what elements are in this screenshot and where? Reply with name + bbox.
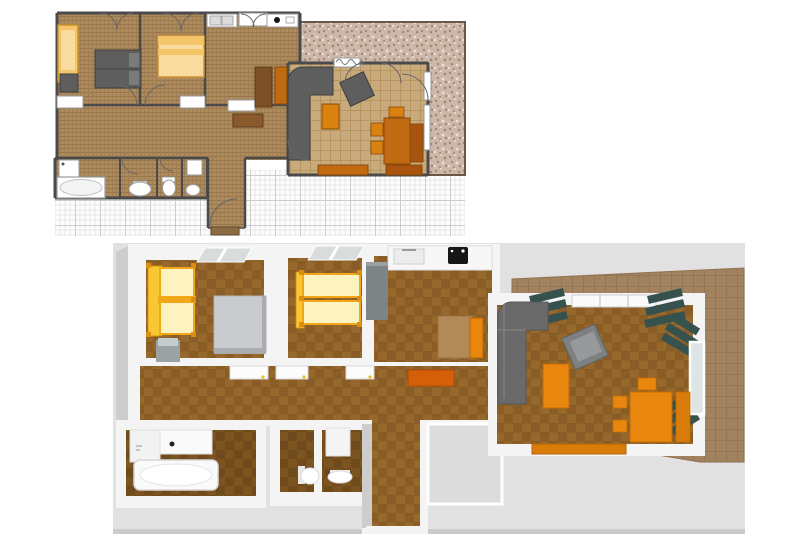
living-brown-cabinet: [255, 67, 272, 107]
wc2-sink: [328, 471, 352, 483]
floor-entry: [372, 420, 420, 526]
toilet-3d-bowl: [301, 468, 319, 484]
bath-counter: [160, 430, 212, 454]
dining-chair-2: [371, 141, 383, 154]
dining-chair-3d-1: [613, 396, 627, 408]
bed2-mattress-upper: [303, 274, 360, 297]
kitchen-cabinet-orange: [470, 318, 483, 358]
shower-tray: [59, 160, 79, 177]
kitchen-table: [438, 316, 472, 358]
bath-sink: [129, 182, 151, 196]
coffee-table-3d: [543, 364, 569, 408]
entry-doormat: [211, 227, 239, 235]
bed2-mattress-lower: [303, 301, 360, 324]
kitchen-stove-burner: [274, 17, 280, 23]
bed2-post-2: [357, 270, 362, 275]
bunkbed-midbar: [158, 296, 196, 303]
living-right-window: [424, 105, 430, 150]
bedroom2-bed-band: [158, 49, 204, 55]
hall-dresser: [233, 114, 263, 127]
double-bed-pillow-1: [129, 53, 139, 67]
bunkbed-post-4: [191, 332, 196, 337]
dining-table-3d: [630, 392, 672, 442]
bunkbed-post-2: [191, 263, 196, 268]
washing-machine: [187, 160, 202, 175]
kitchen-counter-stove: [267, 14, 298, 27]
kitchen-door-opening: [228, 100, 255, 111]
nightstand-top: [158, 338, 178, 346]
bunkbed-post-1: [146, 263, 151, 268]
dining-table-extension: [410, 124, 423, 162]
bunkbed-post-3: [146, 332, 151, 337]
hall-door-handle-2: [302, 375, 305, 378]
hall-console: [408, 370, 454, 386]
bedroom2-window: [180, 96, 205, 108]
kitchen-cooktop: [448, 247, 468, 264]
bath-counter-drain: [170, 442, 175, 447]
kitchen-sink: [394, 249, 424, 264]
cooktop-knob-1: [451, 250, 454, 253]
left-wall-face: [116, 246, 128, 430]
plan-3d-view: [113, 243, 745, 534]
sideboard-1: [318, 165, 368, 175]
bathtub-3d-basin: [140, 464, 212, 486]
dining-chair-3d-3: [638, 378, 656, 390]
entry-left-wall-face: [362, 424, 372, 528]
living-sideboard-3d: [532, 444, 626, 454]
bed2-post-1: [299, 270, 304, 275]
kitchen-sink-basin-1: [210, 16, 221, 25]
coffee-table: [322, 104, 339, 129]
dining-chair-3d-2: [613, 420, 627, 432]
toilet-bowl: [163, 180, 176, 196]
gray-bed: [214, 296, 266, 352]
double-bed-pillow-2: [129, 71, 139, 85]
gray-bed-side: [262, 296, 266, 352]
wc-divider-wall: [314, 424, 322, 502]
plan-2d-view: [55, 13, 465, 236]
kitchen-sink-basin-2: [222, 16, 233, 25]
hall-door-handle-1: [261, 375, 264, 378]
shower-area: [130, 430, 160, 462]
living-top-window: [572, 295, 656, 307]
bedroom1-window: [57, 96, 83, 108]
floorplan-svg: [0, 0, 800, 550]
cooktop-knob-2: [461, 249, 464, 252]
hall-door-handle-3: [368, 375, 371, 378]
bidet: [186, 185, 200, 196]
sideboard-2: [386, 165, 422, 175]
bed2-post-5: [299, 322, 304, 327]
bed2-post-4: [357, 296, 362, 301]
bedroom2-bed-head: [158, 36, 204, 45]
single-bed-mattress: [61, 30, 75, 70]
gray-bed-foot: [214, 348, 266, 354]
living-glass-door: [690, 342, 704, 414]
shower-drain: [62, 163, 65, 166]
fridge: [366, 266, 388, 320]
bunkbed-post-5: [191, 297, 196, 302]
dining-table: [384, 118, 410, 164]
floorplan-canvas: [0, 0, 800, 550]
dining-chair-3: [389, 107, 404, 117]
bed2-post-6: [357, 322, 362, 327]
floor-entry-corridor: [208, 157, 245, 228]
dining-chair-1: [371, 123, 383, 136]
bathtub-basin: [60, 180, 102, 196]
living-orange-cabinet: [275, 67, 287, 104]
bed2-post-3: [299, 296, 304, 301]
entry-bottom-wall: [366, 526, 426, 534]
dining-bench-3d: [676, 392, 690, 442]
ground-panel-shadow: [113, 529, 745, 534]
bedroom1-desk: [60, 74, 78, 92]
wc2-cabinet: [326, 428, 350, 456]
